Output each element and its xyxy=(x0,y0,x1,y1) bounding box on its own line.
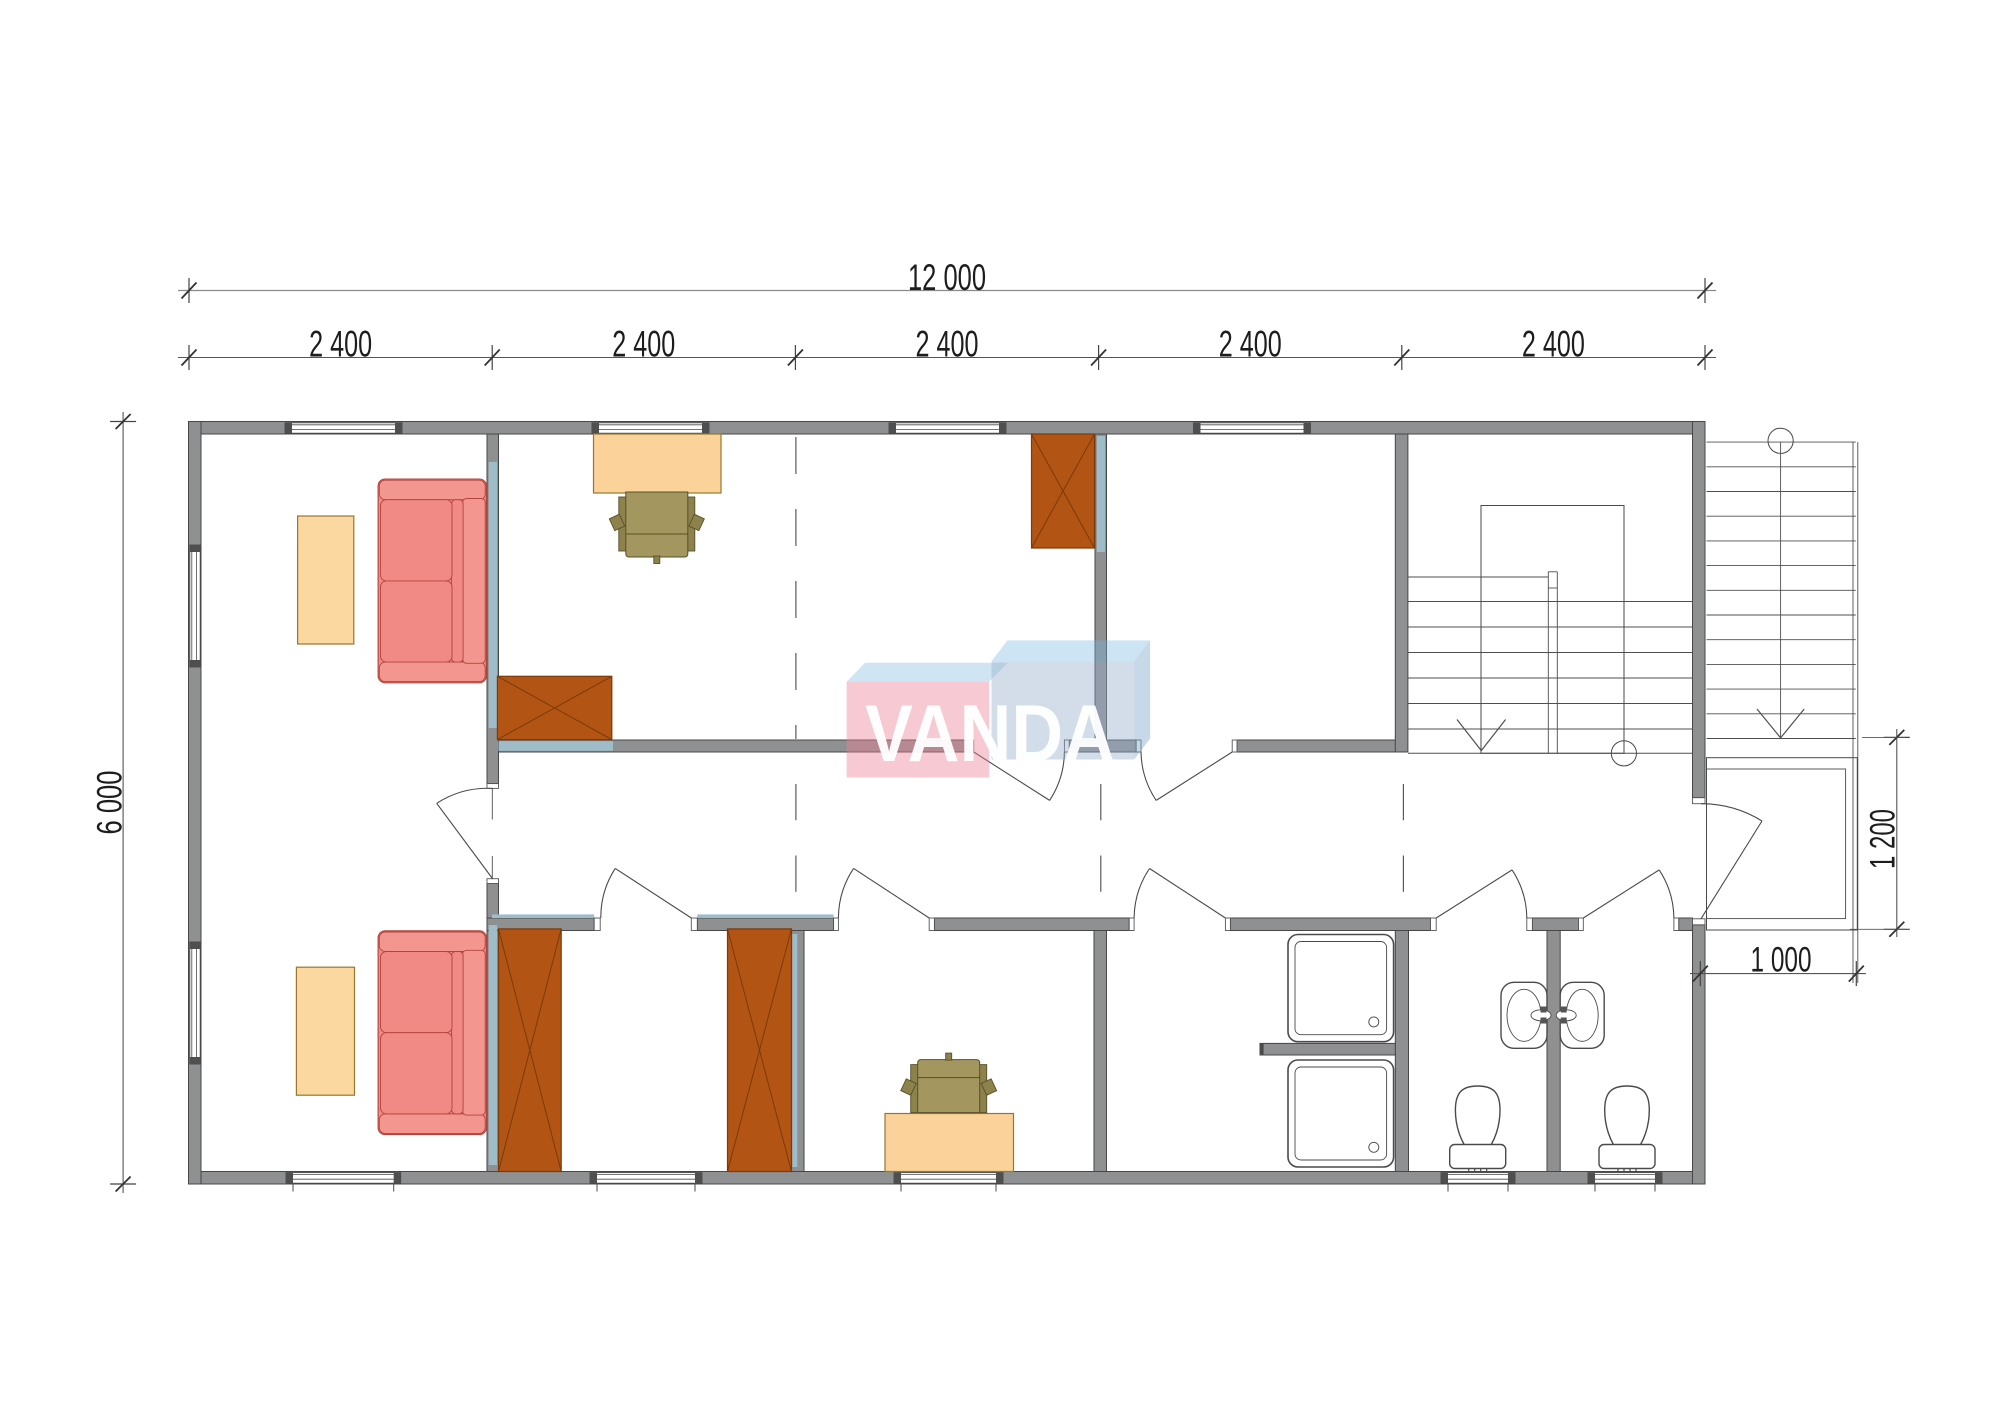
svg-text:2 400: 2 400 xyxy=(1219,324,1282,365)
svg-text:2 400: 2 400 xyxy=(309,324,372,365)
svg-text:VANDA: VANDA xyxy=(865,688,1115,778)
svg-text:12 000: 12 000 xyxy=(908,257,986,298)
svg-text:2 400: 2 400 xyxy=(612,324,675,365)
svg-text:2 400: 2 400 xyxy=(1522,324,1585,365)
svg-text:1 200: 1 200 xyxy=(1864,809,1903,869)
svg-text:6 000: 6 000 xyxy=(90,771,129,835)
svg-text:2 400: 2 400 xyxy=(916,324,979,365)
svg-text:1 000: 1 000 xyxy=(1751,941,1812,980)
